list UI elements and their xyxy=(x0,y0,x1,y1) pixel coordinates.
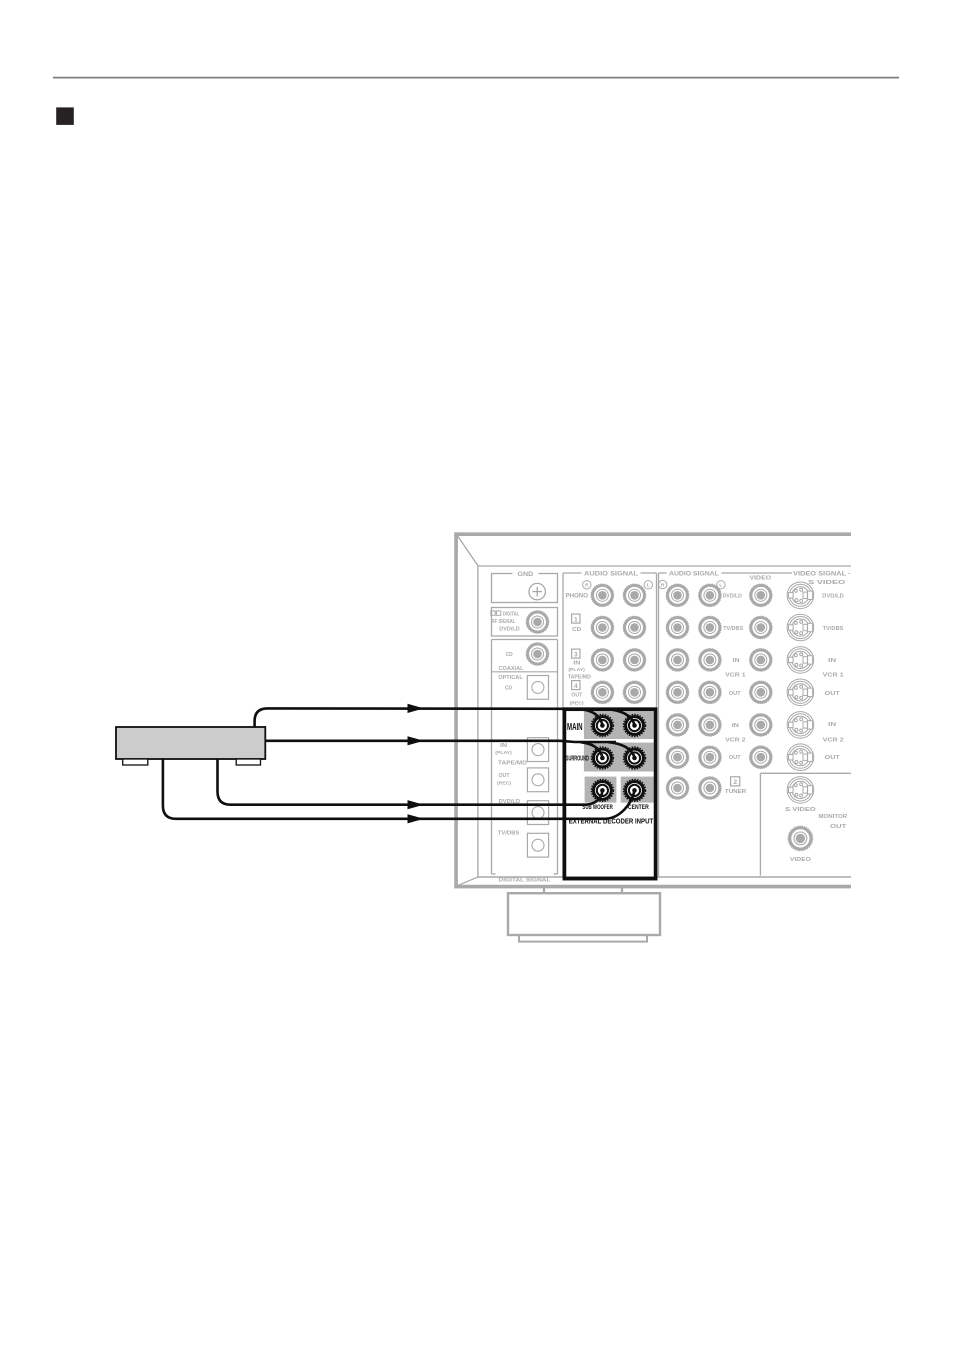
svg-text:TAPE/MD: TAPE/MD xyxy=(498,760,527,766)
svg-text:SURROUND: SURROUND xyxy=(566,756,589,763)
svg-text:IN: IN xyxy=(732,723,739,729)
svg-text:(REC): (REC) xyxy=(570,701,585,706)
svg-text:4: 4 xyxy=(574,683,578,690)
svg-text:R: R xyxy=(661,582,665,588)
svg-text:2: 2 xyxy=(733,779,737,786)
svg-text:GND: GND xyxy=(518,572,534,578)
svg-text:VIDEO: VIDEO xyxy=(790,857,811,863)
svg-text:OUT: OUT xyxy=(499,773,511,779)
svg-text:AUDIO SIGNAL: AUDIO SIGNAL xyxy=(669,570,719,577)
svg-text:VCR 2: VCR 2 xyxy=(823,738,844,744)
svg-text:TV/DBS: TV/DBS xyxy=(823,626,844,632)
svg-text:TAPE/MD: TAPE/MD xyxy=(568,674,591,680)
svg-text:OUT: OUT xyxy=(729,755,741,761)
svg-text:VCR 1: VCR 1 xyxy=(725,672,746,678)
svg-text:(REC): (REC) xyxy=(497,781,512,786)
svg-text:MONITOR: MONITOR xyxy=(819,814,848,820)
svg-text:IN: IN xyxy=(733,658,740,664)
svg-text:R: R xyxy=(585,583,589,589)
svg-text:TV/DBS: TV/DBS xyxy=(498,831,520,837)
svg-text:VIDEO SIGNAL -: VIDEO SIGNAL - xyxy=(793,570,851,577)
svg-text:PHONO: PHONO xyxy=(566,593,589,600)
svg-text:DVD/LD: DVD/LD xyxy=(723,594,742,600)
svg-text:DIGITAL: DIGITAL xyxy=(503,611,519,617)
svg-text:1: 1 xyxy=(574,616,578,623)
svg-text:VCR 1: VCR 1 xyxy=(823,673,845,679)
svg-text:OUT: OUT xyxy=(825,691,841,697)
svg-text:IN: IN xyxy=(500,743,507,749)
svg-text:CD: CD xyxy=(506,652,513,658)
svg-text:OUT: OUT xyxy=(825,755,841,761)
svg-text:S VIDEO: S VIDEO xyxy=(808,580,846,586)
svg-text:S VIDEO: S VIDEO xyxy=(785,807,816,813)
svg-text:VCR 2: VCR 2 xyxy=(725,737,745,743)
svg-text:RF SIGNAL: RF SIGNAL xyxy=(491,619,515,625)
svg-text:IN: IN xyxy=(573,661,580,667)
svg-text:(PLAY): (PLAY) xyxy=(495,750,512,755)
svg-text:(PLAY): (PLAY) xyxy=(568,667,585,672)
svg-text:TUNER: TUNER xyxy=(725,789,747,795)
svg-text:DIGITAL SIGNAL: DIGITAL SIGNAL xyxy=(499,878,552,884)
svg-text:DVD/LD: DVD/LD xyxy=(499,627,520,633)
svg-text:IN: IN xyxy=(828,722,836,728)
svg-text:OUT: OUT xyxy=(571,692,583,698)
svg-text:CD: CD xyxy=(505,686,512,692)
svg-text:CD: CD xyxy=(572,627,581,633)
svg-text:3: 3 xyxy=(574,651,578,658)
svg-text:CENTER: CENTER xyxy=(628,804,649,811)
svg-text:AUDIO SIGNAL: AUDIO SIGNAL xyxy=(584,570,638,577)
svg-text:L: L xyxy=(647,583,650,589)
svg-text:TV/DBS: TV/DBS xyxy=(723,626,743,632)
svg-text:OUT: OUT xyxy=(729,691,741,697)
svg-text:IN: IN xyxy=(828,658,836,664)
svg-text:OUT: OUT xyxy=(830,824,847,830)
svg-text:L: L xyxy=(719,583,722,589)
svg-text:VIDEO: VIDEO xyxy=(750,576,772,582)
svg-text:DVD/LD: DVD/LD xyxy=(822,594,844,600)
svg-text:MAIN: MAIN xyxy=(567,722,583,733)
svg-text:COAXIAL: COAXIAL xyxy=(499,666,524,672)
svg-text:OPTICAL: OPTICAL xyxy=(498,675,523,681)
